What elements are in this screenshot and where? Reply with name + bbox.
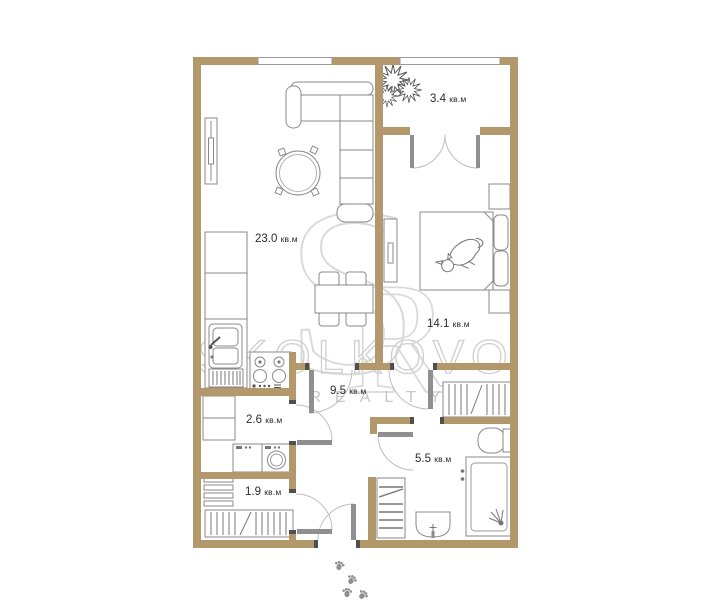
stove (250, 352, 291, 390)
laundry-door-leaf (297, 440, 332, 445)
area-unit: кв.м (449, 94, 466, 104)
balcony-door-leaf (410, 135, 414, 168)
dining-table (315, 272, 373, 326)
area-value: 5.5 (415, 453, 431, 465)
entrance-door-leaf (351, 504, 356, 540)
label-storage-area: 1.9 кв.м (245, 486, 281, 498)
radiator (205, 118, 217, 184)
shelves (204, 477, 233, 506)
window-living (258, 58, 332, 65)
area-unit: кв.м (264, 487, 281, 497)
balcony-door-leaf (476, 135, 480, 168)
area-value: 9.5 (330, 385, 346, 397)
bathtub (461, 457, 512, 536)
balcony-door-arc (412, 135, 445, 168)
area-unit: кв.м (265, 415, 282, 425)
label-laundry-area: 2.6 кв.м (246, 414, 282, 426)
area-value: 2.6 (246, 414, 262, 426)
living-door-leaf (309, 370, 314, 413)
label-living-room-area: 23.0 кв.м (255, 233, 298, 245)
area-unit: кв.м (281, 234, 298, 244)
kitchen-cabinet (205, 273, 247, 319)
bedroom-door-arc (389, 370, 428, 409)
toilet (478, 428, 511, 453)
entrance-door-arc (318, 504, 354, 540)
floor-plan-canvas: S R SKOLKOVO REALTY (0, 0, 720, 600)
area-value: 14.1 (427, 318, 449, 330)
bedroom-door-leaf (428, 370, 433, 409)
paw-prints (333, 560, 369, 600)
towel-radiator (377, 478, 405, 538)
washing-machine (262, 444, 291, 472)
plan-layer (0, 0, 720, 600)
wardrobe (443, 382, 513, 417)
round-table (275, 146, 320, 196)
label-hallway-area: 9.5 кв.м (330, 385, 366, 397)
dryer (233, 444, 262, 472)
bathroom-sink (416, 512, 450, 538)
area-unit: кв.м (349, 386, 366, 396)
storage-wardrobe (205, 510, 293, 537)
laundry-cabinet (203, 396, 235, 440)
storage-door-arc (296, 494, 332, 530)
area-value: 23.0 (255, 233, 277, 245)
bathroom-door-arc (378, 435, 413, 470)
label-balcony-area: 3.4 кв.м (430, 93, 466, 105)
fridge (205, 232, 247, 273)
tv-stand (384, 219, 397, 282)
label-bathroom-area: 5.5 кв.м (415, 453, 451, 465)
window-balcony (400, 58, 500, 65)
storage-door-leaf (297, 529, 332, 534)
balcony-door-arc (445, 135, 478, 168)
bathroom-door-leaf (378, 432, 413, 437)
label-bedroom-area: 14.1 кв.м (427, 318, 470, 330)
area-value: 3.4 (430, 93, 446, 105)
kitchen-sink (205, 319, 247, 388)
area-unit: кв.м (434, 454, 451, 464)
area-unit: кв.м (453, 319, 470, 329)
area-value: 1.9 (245, 486, 261, 498)
